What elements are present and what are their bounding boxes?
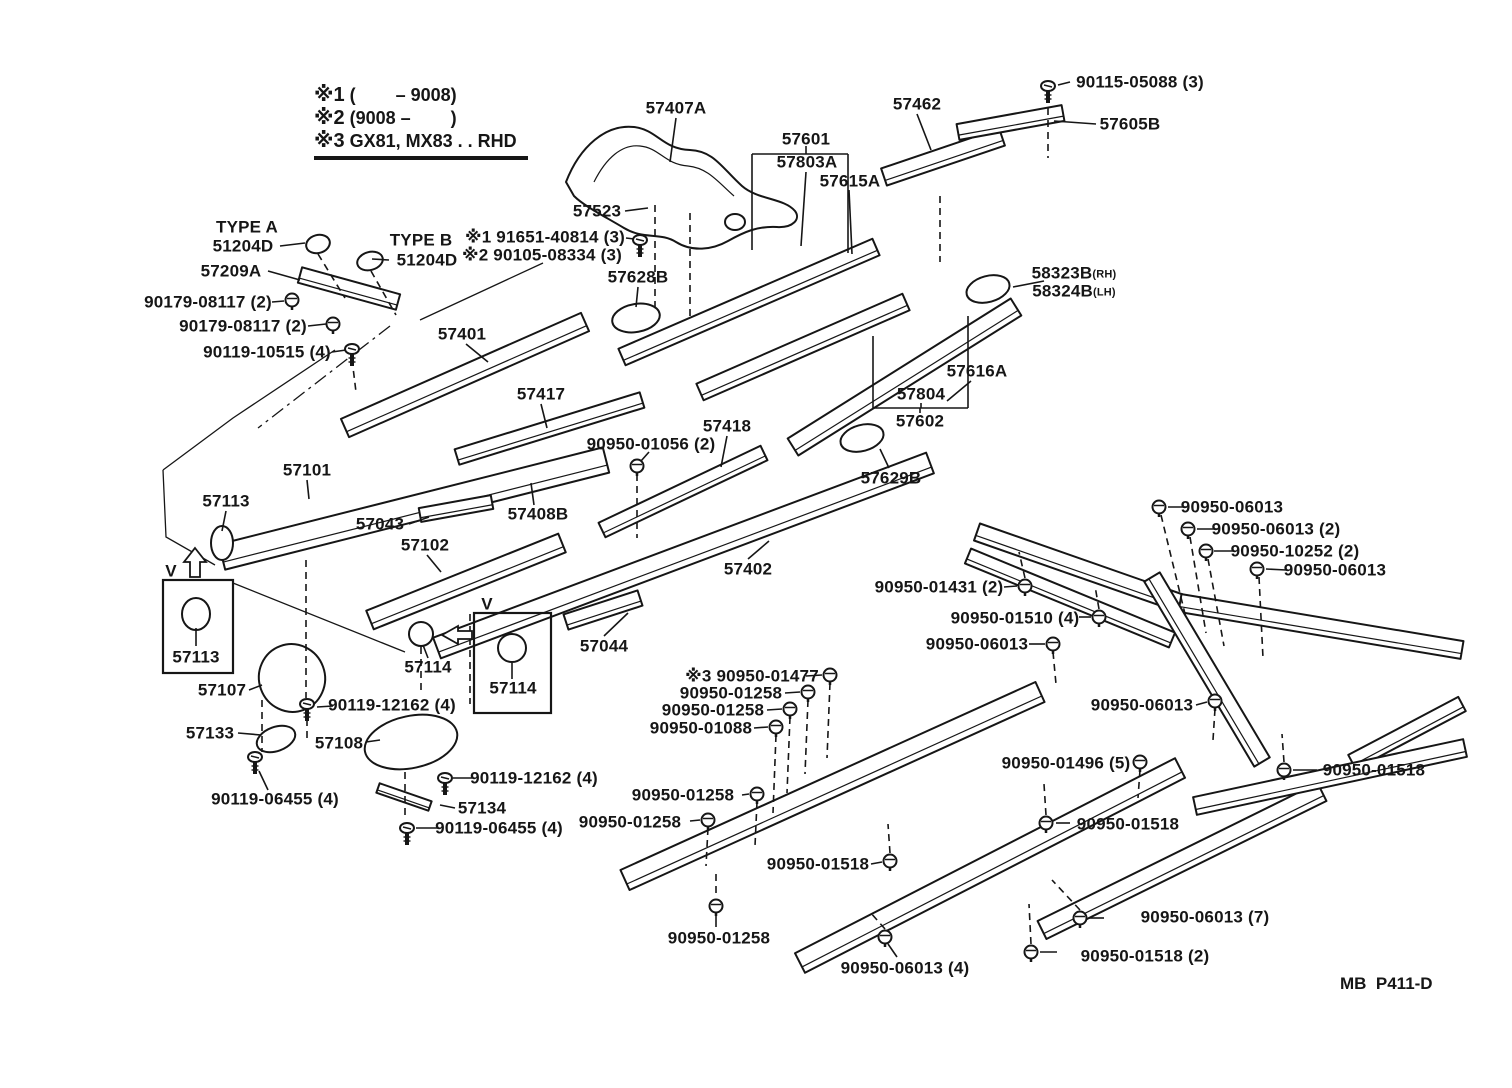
clip-nut-icon xyxy=(710,900,723,917)
clip-nut-icon xyxy=(1200,545,1213,562)
part-label: 90950-01518 (2) xyxy=(1081,948,1210,965)
part-label: 90950-01510 (4) xyxy=(951,610,1080,627)
part-label: 57044 xyxy=(580,638,628,655)
part-label: 90119-12162 (4) xyxy=(328,697,456,714)
part-shapes xyxy=(163,105,1467,973)
part-label: 57134 xyxy=(458,800,506,817)
part-label: 57601 xyxy=(782,131,830,148)
note-line: ※2 (9008 – ) xyxy=(314,107,528,130)
part-label: 57114 xyxy=(404,659,451,676)
part-label: 57605B xyxy=(1100,116,1161,133)
part-label: 90950-01518 xyxy=(1323,762,1425,779)
part-label: 57102 xyxy=(401,537,449,554)
screw-icon xyxy=(345,344,359,366)
part-label: 90950-06013 xyxy=(926,636,1028,653)
page-code: MB P411-D xyxy=(1340,974,1433,994)
part-label: 57402 xyxy=(724,561,772,578)
parts-diagram-page: 57407A5760157803A57615A5746290115-05088 … xyxy=(0,0,1512,1088)
screw-icon xyxy=(633,235,647,257)
part-label: 58324B(LH) xyxy=(1032,283,1116,300)
clip-nut-icon xyxy=(802,686,815,703)
part-label: 57602 xyxy=(896,413,944,430)
clip-nut-icon xyxy=(884,855,897,872)
part-label: 90950-06013 (2) xyxy=(1212,521,1341,538)
clip-nut-icon xyxy=(1093,611,1106,628)
part-label: 90950-01056 (2) xyxy=(587,436,716,453)
clip-nut-icon xyxy=(784,703,797,720)
clip-nut-icon xyxy=(1025,946,1038,963)
part-label: 57462 xyxy=(893,96,941,113)
screw-icon xyxy=(1041,81,1055,103)
part-label: 57114 xyxy=(489,680,536,697)
part-label: 57107 xyxy=(198,682,246,699)
clip-nut-icon xyxy=(770,721,783,738)
part-label: 57407A xyxy=(646,100,707,117)
clip-nut-icon xyxy=(327,318,340,335)
part-label: 90115-05088 (3) xyxy=(1076,74,1204,91)
note-marker: ※2 xyxy=(314,107,345,129)
clip-nut-icon xyxy=(286,294,299,311)
part-label: 90950-06013 (7) xyxy=(1141,909,1270,926)
part-label: 57113 xyxy=(202,493,249,510)
part-label: 57401 xyxy=(438,326,486,343)
part-label-suffix: (RH) xyxy=(1092,269,1116,281)
note-text: (9008 – ) xyxy=(345,108,457,128)
diagram-notes: ※1 ( – 9008)※2 (9008 – )※3 GX81, MX83 . … xyxy=(314,84,528,160)
part-label: 90179-08117 (2) xyxy=(144,294,272,311)
clip-nut-icon xyxy=(1251,563,1264,580)
part-label: TYPE B xyxy=(390,232,453,249)
part-label: 57803A xyxy=(777,154,838,171)
part-label: 57616A xyxy=(947,363,1008,380)
part-label: 90950-06013 xyxy=(1284,562,1386,579)
part-label: 90950-01496 (5) xyxy=(1002,755,1131,772)
part-label: 90950-01518 xyxy=(767,856,869,873)
part-label: 57101 xyxy=(283,462,331,479)
clip-nut-icon xyxy=(879,931,892,948)
part-label: 90119-12162 (4) xyxy=(470,770,598,787)
part-label: 90950-06013 xyxy=(1181,499,1283,516)
part-label: 57417 xyxy=(517,386,565,403)
part-label: 57408B xyxy=(508,506,569,523)
part-label: 57629B xyxy=(861,470,922,487)
arrow-up-icon xyxy=(184,548,206,577)
note-line: ※3 GX81, MX83 . . RHD xyxy=(314,130,528,153)
part-label: 90950-01258 xyxy=(579,814,681,831)
part-label: 57133 xyxy=(186,725,234,742)
clip-nut-icon xyxy=(1047,638,1060,655)
part-label: 57418 xyxy=(703,418,751,435)
part-label: 90119-10515 (4) xyxy=(203,344,331,361)
clip-nut-icon xyxy=(1153,501,1166,518)
note-marker: ※1 xyxy=(314,84,345,106)
part-label: 90950-01258 xyxy=(662,702,764,719)
part-label: ※3 90950-01477 xyxy=(685,668,819,685)
part-label: V xyxy=(165,563,177,580)
clip-nut-icon xyxy=(1182,523,1195,540)
part-label: 57804 xyxy=(897,386,945,403)
part-label: 90950-01258 xyxy=(668,930,770,947)
part-label: 90950-01431 (2) xyxy=(875,579,1004,596)
screw-icon xyxy=(400,823,414,845)
part-label: 51204D xyxy=(397,252,458,269)
part-label: 58323B(RH) xyxy=(1032,265,1117,282)
screw-icon xyxy=(248,752,262,774)
part-label: 57523 xyxy=(573,203,621,220)
part-label: 51204D xyxy=(213,238,274,255)
part-label: 57113 xyxy=(172,649,219,666)
part-label: 90950-06013 xyxy=(1091,697,1193,714)
part-label: 90950-01258 xyxy=(680,685,782,702)
part-label: 57108 xyxy=(315,735,363,752)
note-marker: ※3 xyxy=(314,130,345,152)
screw-icon xyxy=(438,773,452,795)
clip-nut-icon xyxy=(1134,756,1147,773)
part-label: 90119-06455 (4) xyxy=(435,820,563,837)
part-label-suffix: (LH) xyxy=(1093,287,1116,299)
part-label: ※2 90105-08334 (3) xyxy=(462,247,622,264)
part-label: ※1 91651-40814 (3) xyxy=(465,229,625,246)
part-label: 57628B xyxy=(608,269,669,286)
part-label: 90950-01518 xyxy=(1077,816,1179,833)
note-text: GX81, MX83 . . RHD xyxy=(345,131,517,151)
part-label: V xyxy=(481,596,493,613)
note-line: ※1 ( – 9008) xyxy=(314,84,528,107)
part-label: 90950-01258 xyxy=(632,787,734,804)
part-label: 90179-08117 (2) xyxy=(179,318,307,335)
clip-nut-icon xyxy=(1019,580,1032,597)
part-label: 57209A xyxy=(201,263,262,280)
clip-nut-icon xyxy=(631,460,644,477)
part-label: 90950-01088 xyxy=(650,720,752,737)
part-label: 57615A xyxy=(820,173,881,190)
part-label: 90950-10252 (2) xyxy=(1231,543,1360,560)
note-text: ( – 9008) xyxy=(345,85,457,105)
part-label: TYPE A xyxy=(216,219,278,236)
part-label: 57043 xyxy=(356,516,404,533)
part-label: 90950-06013 (4) xyxy=(841,960,970,977)
clip-nut-icon xyxy=(751,788,764,805)
clip-nut-icon xyxy=(824,669,837,686)
part-label: 90119-06455 (4) xyxy=(211,791,339,808)
